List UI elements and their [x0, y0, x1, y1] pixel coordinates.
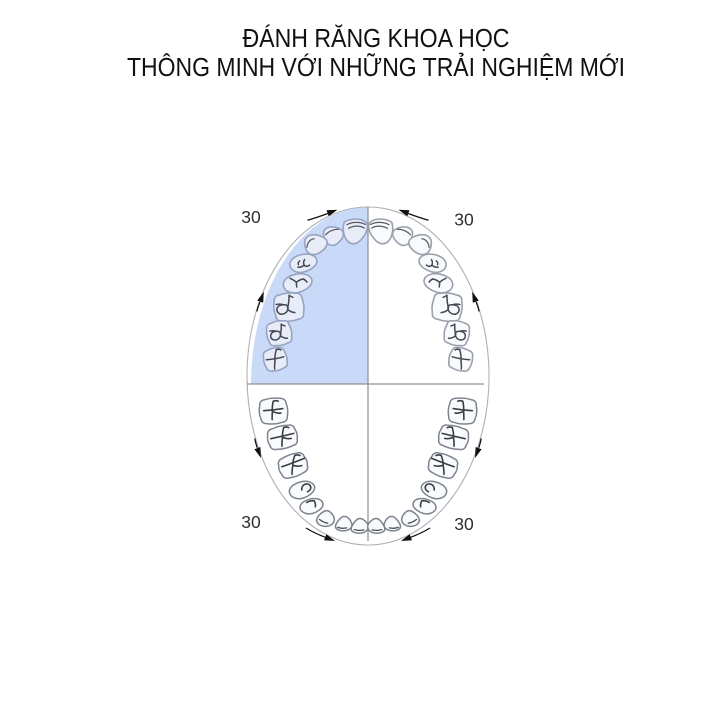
svg-text:30: 30	[241, 207, 261, 227]
svg-text:30: 30	[454, 514, 474, 534]
svg-text:THÔNG MINH VỚI NHỮNG TRẢI NGHI: THÔNG MINH VỚI NHỮNG TRẢI NGHIỆM MỚI	[127, 52, 625, 82]
svg-text:30: 30	[454, 210, 474, 230]
svg-text:30: 30	[241, 512, 261, 532]
svg-text:ĐÁNH RĂNG KHOA HỌC: ĐÁNH RĂNG KHOA HỌC	[243, 23, 510, 53]
